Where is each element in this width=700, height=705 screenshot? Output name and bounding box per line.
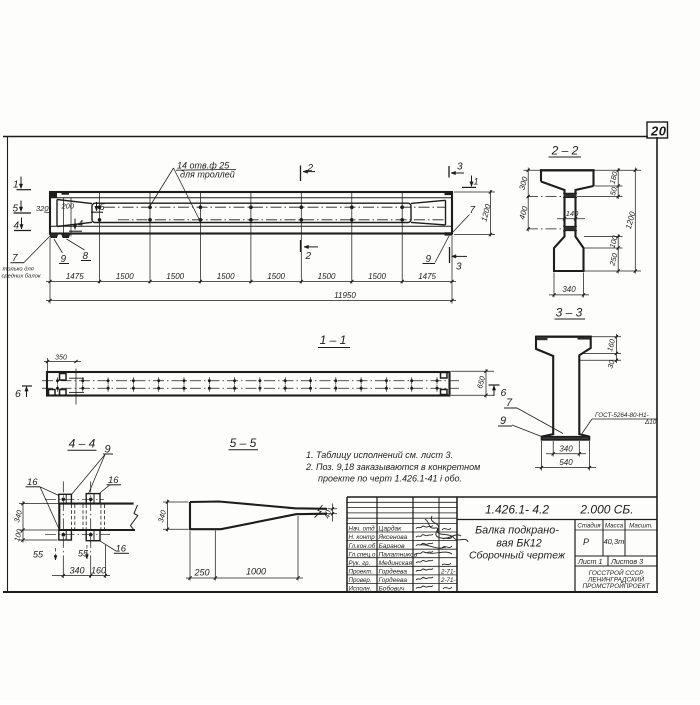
- svg-text:7: 7: [506, 397, 513, 409]
- svg-text:1: 1: [13, 180, 19, 191]
- svg-text:5 – 5: 5 – 5: [230, 436, 257, 450]
- svg-text:6: 6: [15, 388, 21, 400]
- svg-text:2-71-: 2-71-: [440, 569, 455, 576]
- svg-text:340: 340: [559, 444, 573, 453]
- svg-text:2: 2: [305, 251, 312, 262]
- svg-text:Гл.кон.об: Гл.кон.об: [349, 543, 376, 550]
- svg-text:средних балок: средних балок: [2, 274, 41, 280]
- svg-text:Мединская: Мединская: [379, 559, 413, 567]
- svg-text:140: 140: [566, 209, 579, 218]
- svg-text:1475: 1475: [66, 272, 84, 281]
- svg-text:Исполн.: Исполн.: [349, 586, 372, 593]
- svg-text:2 – 2: 2 – 2: [551, 144, 579, 158]
- svg-text:ПРОМСТРОЙПРОЕКТ: ПРОМСТРОЙПРОЕКТ: [582, 581, 650, 590]
- svg-text:3 – 3: 3 – 3: [556, 306, 583, 320]
- svg-text:340: 340: [69, 565, 84, 575]
- svg-text:Цардак: Цардак: [379, 525, 403, 533]
- svg-text:Масшт.: Масшт.: [629, 523, 653, 530]
- svg-text:Гл.спец.о: Гл.спец.о: [349, 551, 376, 558]
- svg-text:20: 20: [650, 124, 667, 139]
- svg-text:55: 55: [33, 550, 44, 560]
- svg-text:1500: 1500: [116, 272, 134, 281]
- svg-text:Лист 1: Лист 1: [577, 557, 603, 566]
- svg-text:Бобович: Бобович: [379, 585, 405, 593]
- svg-text:Палатников: Палатников: [379, 551, 418, 558]
- svg-text:9: 9: [500, 415, 506, 427]
- svg-text:540: 540: [559, 458, 573, 467]
- svg-text:проекте по черт 1.426.1-41 i: проекте по черт 1.426.1-41 i обо.: [318, 473, 462, 483]
- svg-text:320: 320: [36, 204, 49, 213]
- svg-text:1 – 1: 1 – 1: [320, 333, 347, 347]
- svg-text:3: 3: [456, 262, 462, 273]
- svg-text:1000: 1000: [246, 567, 266, 577]
- svg-text:для троллей: для троллей: [180, 170, 235, 180]
- svg-text:только для: только для: [3, 267, 34, 273]
- svg-text:ГОСТ-5264-80-Н1-: ГОСТ-5264-80-Н1-: [595, 412, 649, 419]
- svg-text:Δ10: Δ10: [644, 419, 657, 426]
- svg-text:Н. контр: Н. контр: [349, 534, 376, 541]
- svg-text:2. Поз. 9,18 заказываются в ко: 2. Поз. 9,18 заказываются в конкретном: [305, 462, 480, 472]
- svg-text:4: 4: [14, 221, 20, 232]
- svg-text:1500: 1500: [267, 272, 285, 281]
- svg-text:1500: 1500: [217, 272, 235, 281]
- svg-text:3: 3: [457, 162, 463, 173]
- svg-text:Масса: Масса: [605, 523, 624, 530]
- svg-text:200: 200: [61, 202, 75, 211]
- svg-text:Нач. отд: Нач. отд: [349, 526, 376, 533]
- svg-text:Гордеева: Гордеева: [379, 576, 408, 584]
- svg-text:160: 160: [91, 565, 106, 575]
- svg-text:Проект.: Проект.: [349, 569, 374, 576]
- svg-text:Яксенова: Яксенова: [378, 534, 408, 541]
- svg-text:вая БК12: вая БК12: [496, 538, 542, 550]
- svg-text:2: 2: [307, 163, 314, 174]
- svg-text:Провер.: Провер.: [349, 577, 372, 584]
- svg-text:40,3т: 40,3т: [604, 537, 625, 546]
- svg-text:340: 340: [562, 285, 576, 294]
- svg-text:1500: 1500: [368, 272, 386, 281]
- svg-text:1. Таблицу исполнений см. лис: 1. Таблицу исполнений см. лист 3.: [306, 450, 453, 460]
- svg-text:Гордеева: Гордеева: [379, 568, 408, 576]
- svg-text:Баранов: Баранов: [379, 543, 406, 550]
- svg-text:Стадия: Стадия: [577, 523, 601, 530]
- svg-text:Рук. гр.: Рук. гр.: [349, 560, 371, 567]
- svg-text:250: 250: [193, 568, 209, 578]
- svg-text:Сборочный чертеж: Сборочный чертеж: [469, 550, 566, 562]
- svg-text:Листов 3: Листов 3: [610, 557, 643, 566]
- svg-text:1475: 1475: [418, 272, 436, 281]
- svg-text:7: 7: [470, 205, 476, 216]
- svg-text:2-71-: 2-71-: [440, 577, 455, 584]
- svg-text:Балка подкрано-: Балка подкрано-: [475, 525, 559, 537]
- svg-text:1: 1: [474, 177, 479, 187]
- svg-text:4 – 4: 4 – 4: [69, 437, 96, 451]
- svg-text:4: 4: [78, 219, 83, 229]
- svg-text:1.426.1- 4.2: 1.426.1- 4.2: [485, 503, 549, 517]
- svg-text:2.000 СБ.: 2.000 СБ.: [579, 503, 633, 517]
- svg-text:350: 350: [55, 355, 67, 362]
- svg-text:11950: 11950: [334, 291, 356, 300]
- svg-text:Р: Р: [583, 537, 589, 547]
- svg-text:1500: 1500: [166, 272, 184, 281]
- svg-text:1500: 1500: [318, 272, 336, 281]
